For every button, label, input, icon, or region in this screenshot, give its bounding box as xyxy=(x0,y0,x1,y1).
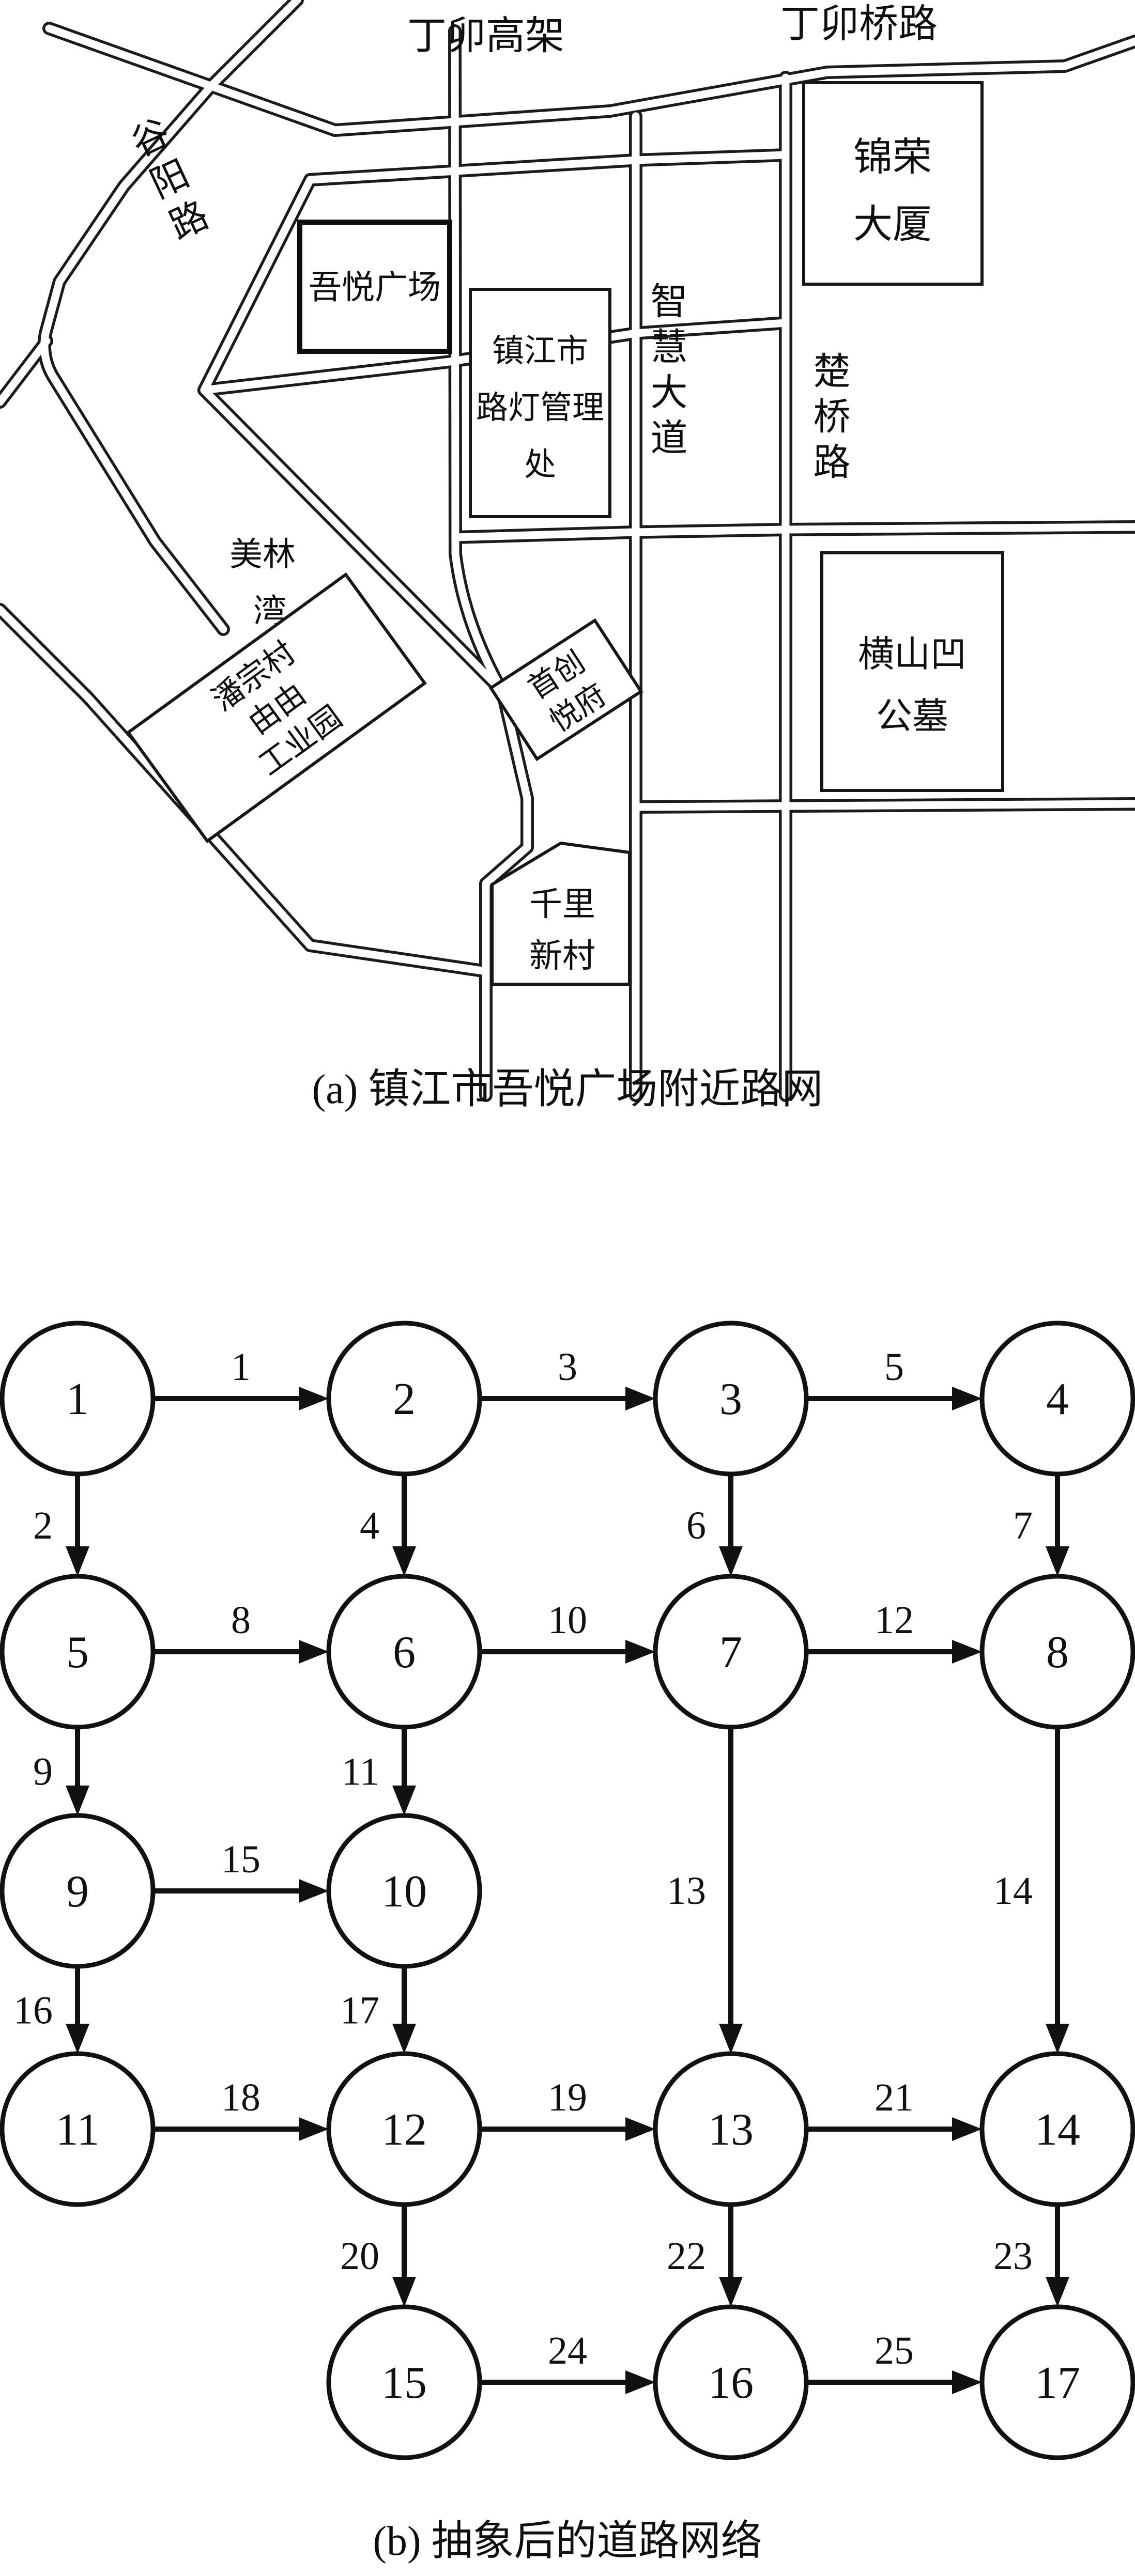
edge-label-7: 7 xyxy=(1013,1504,1033,1547)
edge-label-23: 23 xyxy=(993,2234,1033,2278)
edge-arrowhead-18 xyxy=(299,2117,329,2141)
edge-arrowhead-25 xyxy=(952,2370,982,2394)
place-label-streetlight-2: 路灯管理 xyxy=(476,391,604,426)
edge-arrowhead-22 xyxy=(719,2277,743,2307)
edge-arrowhead-11 xyxy=(392,1786,416,1815)
edge-arrowhead-5 xyxy=(952,1387,982,1410)
edge-label-17: 17 xyxy=(340,1989,379,2032)
edge-label-11: 11 xyxy=(342,1750,379,1794)
edge-arrowhead-9 xyxy=(66,1786,89,1815)
edge-label-12: 12 xyxy=(875,1599,914,1642)
graph-panel: 1234567891011121314151617181920212223242… xyxy=(2,1323,1133,2458)
graph-node-label-10: 10 xyxy=(381,1867,427,1917)
edge-label-1: 1 xyxy=(231,1345,251,1389)
graph-node-label-1: 1 xyxy=(66,1374,89,1424)
graph-node-label-13: 13 xyxy=(708,2105,754,2155)
graph-node-label-9: 9 xyxy=(66,1867,89,1917)
edge-arrowhead-10 xyxy=(625,1640,655,1664)
place-label-hengshan-1: 横山凹 xyxy=(858,635,967,675)
place-wuyue-plaza: 吾悦广场 xyxy=(300,222,450,351)
edge-arrowhead-13 xyxy=(719,2024,743,2054)
graph-node-label-15: 15 xyxy=(381,2358,427,2408)
edge-label-16: 16 xyxy=(13,1989,53,2032)
edge-label-18: 18 xyxy=(221,2076,260,2119)
edge-arrowhead-19 xyxy=(625,2117,655,2141)
place-label-jinrong-2: 大厦 xyxy=(853,203,932,246)
edge-label-15: 15 xyxy=(221,1838,260,1881)
place-label-streetlight-3: 处 xyxy=(524,447,556,483)
edge-label-6: 6 xyxy=(686,1504,706,1547)
road-label-dingmaoqiao: 丁卯桥路 xyxy=(780,3,938,46)
edge-label-19: 19 xyxy=(548,2076,587,2119)
graph-node-label-7: 7 xyxy=(719,1627,742,1678)
edge-label-4: 4 xyxy=(360,1504,379,1547)
edge-arrowhead-7 xyxy=(1046,1546,1069,1576)
edge-label-9: 9 xyxy=(33,1750,53,1794)
graph-node-label-5: 5 xyxy=(66,1627,89,1678)
edge-arrowhead-6 xyxy=(719,1546,743,1576)
edge-arrowhead-12 xyxy=(952,1640,982,1664)
graph-node-label-8: 8 xyxy=(1046,1627,1069,1678)
edge-label-10: 10 xyxy=(548,1599,587,1642)
edge-arrowhead-16 xyxy=(66,2024,89,2054)
figure-page: 丁卯高架 丁卯桥路 谷阳路 智慧大道 楚桥路 吾悦广场 锦荣 大厦 镇江市 路灯… xyxy=(0,0,1135,2576)
edge-label-24: 24 xyxy=(548,2329,587,2372)
place-label-jinrong-1: 锦荣 xyxy=(853,136,932,179)
caption-b: (b) 抽象后的道路网络 xyxy=(373,2519,762,2564)
place-meilin-bay: 美林 湾 xyxy=(229,536,296,630)
graph-node-label-3: 3 xyxy=(719,1374,742,1424)
edge-arrowhead-21 xyxy=(952,2117,982,2141)
place-label-qianli-2: 新村 xyxy=(529,938,595,974)
place-label-meilin-1: 美林 xyxy=(229,536,296,573)
road-label-dingmao-viaduct: 丁卯高架 xyxy=(407,14,564,58)
figure-canvas: 丁卯高架 丁卯桥路 谷阳路 智慧大道 楚桥路 吾悦广场 锦荣 大厦 镇江市 路灯… xyxy=(0,0,1135,2576)
graph-node-label-17: 17 xyxy=(1035,2358,1080,2408)
edge-arrowhead-17 xyxy=(392,2024,416,2054)
edge-label-14: 14 xyxy=(993,1869,1033,1913)
place-label-streetlight-1: 镇江市 xyxy=(492,334,588,369)
edge-label-13: 13 xyxy=(667,1869,706,1913)
caption-a: (a) 镇江市吾悦广场附近路网 xyxy=(312,1067,823,1112)
edge-arrowhead-15 xyxy=(299,1879,329,1903)
edge-arrowhead-4 xyxy=(392,1546,416,1576)
edge-arrowhead-3 xyxy=(625,1387,655,1410)
edge-arrowhead-20 xyxy=(392,2277,416,2307)
edge-label-3: 3 xyxy=(558,1345,577,1389)
graph-node-label-16: 16 xyxy=(708,2358,754,2408)
place-hengshan-cemetery: 横山凹 公墓 xyxy=(822,553,1003,790)
edge-label-8: 8 xyxy=(231,1599,251,1642)
graph-node-label-12: 12 xyxy=(381,2105,427,2155)
edge-arrowhead-14 xyxy=(1046,2024,1069,2054)
edge-label-22: 22 xyxy=(667,2234,706,2278)
edge-label-5: 5 xyxy=(884,1345,904,1389)
edge-arrowhead-8 xyxy=(299,1640,329,1664)
edge-label-21: 21 xyxy=(875,2076,914,2119)
place-label-qianli-1: 千里 xyxy=(529,886,595,923)
road-label-zhihui: 智慧大道 xyxy=(645,282,686,463)
place-label-wuyue-plaza: 吾悦广场 xyxy=(309,269,441,306)
edge-arrowhead-23 xyxy=(1046,2277,1069,2307)
graph-node-label-14: 14 xyxy=(1035,2105,1080,2155)
place-label-hengshan-2: 公墓 xyxy=(876,697,948,737)
map-panel: 丁卯高架 丁卯桥路 谷阳路 智慧大道 楚桥路 吾悦广场 锦荣 大厦 镇江市 路灯… xyxy=(0,0,1135,1095)
edge-label-20: 20 xyxy=(340,2234,379,2278)
graph-node-label-6: 6 xyxy=(393,1627,416,1678)
place-streetlight-office: 镇江市 路灯管理 处 xyxy=(470,289,610,517)
graph-node-label-4: 4 xyxy=(1046,1374,1069,1424)
graph-node-label-11: 11 xyxy=(56,2105,100,2155)
graph-node-label-2: 2 xyxy=(393,1374,416,1424)
edge-label-25: 25 xyxy=(875,2329,914,2372)
edge-arrowhead-1 xyxy=(299,1387,329,1410)
edge-arrowhead-24 xyxy=(625,2370,655,2394)
road-label-chuqiao: 楚桥路 xyxy=(807,351,849,488)
edge-arrowhead-2 xyxy=(66,1546,89,1576)
edge-label-2: 2 xyxy=(33,1504,53,1547)
place-jinrong-tower: 锦荣 大厦 xyxy=(804,83,982,284)
